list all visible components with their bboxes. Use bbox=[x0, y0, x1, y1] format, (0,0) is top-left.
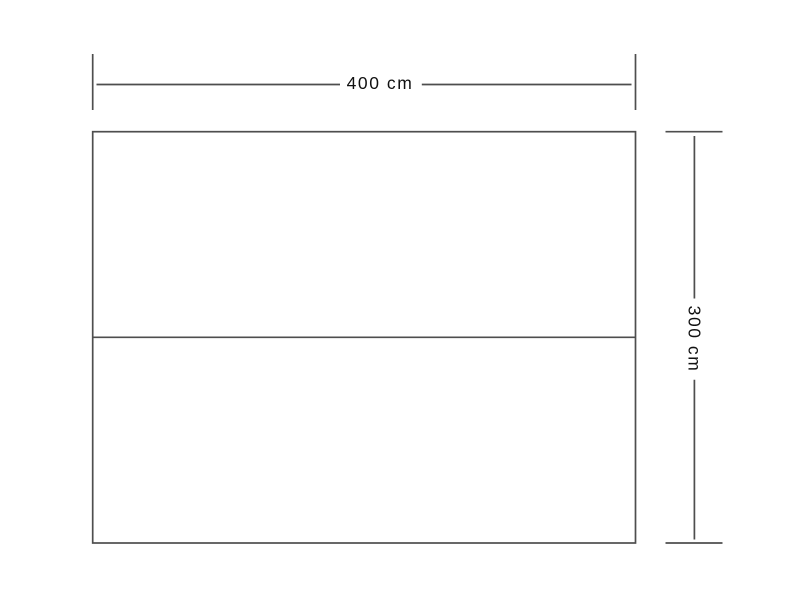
svg-text:400 cm: 400 cm bbox=[347, 73, 414, 93]
svg-text:300 cm: 300 cm bbox=[684, 306, 704, 373]
